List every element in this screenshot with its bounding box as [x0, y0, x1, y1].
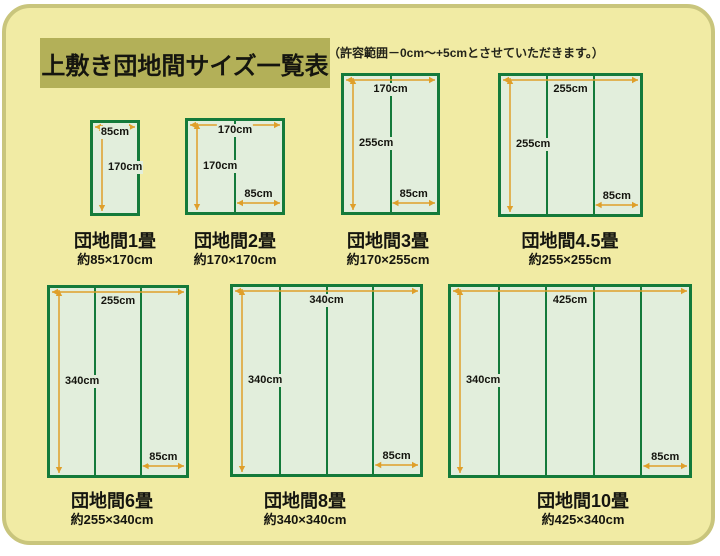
diagram-size-label: 約255×340cm — [71, 509, 154, 528]
mat-divider — [234, 121, 236, 212]
mat-width-dimension-label: 85cm — [382, 450, 412, 463]
mat-divider — [546, 76, 548, 214]
mat-divider — [640, 287, 642, 475]
width-dimension-label: 170cm — [217, 124, 253, 137]
mat-width-dimension-label: 85cm — [148, 451, 178, 464]
diagram-danchima-4-5jo: 255cm255cm85cm団地間4.5畳約255×255cm — [0, 0, 720, 556]
dimension-arrows — [451, 287, 689, 475]
height-dimension-label: 170cm — [202, 160, 238, 173]
diagrams-layer: 85cm170cm団地間1畳約85×170cm170cm170cm85cm団地間… — [0, 0, 720, 556]
width-dimension-label: 255cm — [552, 83, 588, 96]
mat-width-dimension-label: 85cm — [650, 451, 680, 464]
diagram-size-label: 約340×340cm — [264, 509, 347, 528]
mat-rect: 85cm170cm — [90, 120, 140, 216]
diagram-danchima-10jo: 425cm340cm85cm団地間10畳約425×340cm — [0, 0, 720, 556]
mat-divider — [279, 287, 281, 474]
diagram-size-label: 約85×170cm — [77, 249, 153, 268]
height-dimension-label: 255cm — [358, 137, 394, 150]
height-dimension-label: 255cm — [515, 138, 551, 151]
diagram-danchima-8jo: 340cm340cm85cm団地間8畳約340×340cm — [0, 0, 720, 556]
height-dimension-label: 340cm — [465, 374, 501, 387]
diagram-title: 団地間8畳 — [264, 487, 346, 513]
mat-width-dimension-label: 85cm — [602, 190, 632, 203]
diagram-title: 団地間6畳 — [71, 487, 153, 513]
width-dimension-label: 425cm — [552, 294, 588, 307]
mat-rect: 425cm340cm85cm — [448, 284, 692, 478]
diagram-danchima-3jo: 170cm255cm85cm団地間3畳約170×255cm — [0, 0, 720, 556]
mat-divider — [140, 288, 142, 475]
width-dimension-label: 85cm — [100, 126, 130, 139]
mat-divider — [498, 287, 500, 475]
mat-divider — [326, 287, 328, 474]
diagram-title: 団地間4.5畳 — [521, 227, 618, 253]
size-chart-poster: 上敷き団地間サイズ一覧表 （許容範囲－0cm～+5cmとさせていただきます。） … — [0, 0, 720, 556]
diagram-title: 団地間10畳 — [537, 487, 629, 513]
diagram-size-label: 約170×170cm — [194, 249, 277, 268]
diagram-title: 団地間1畳 — [74, 227, 156, 253]
mat-divider — [593, 287, 595, 475]
dimension-arrows — [50, 288, 186, 475]
dimension-arrows — [501, 76, 640, 214]
diagram-danchima-1jo: 85cm170cm団地間1畳約85×170cm — [0, 0, 720, 556]
mat-divider — [94, 288, 96, 475]
width-dimension-label: 255cm — [100, 295, 136, 308]
height-dimension-label: 340cm — [247, 374, 283, 387]
mat-width-dimension-label: 85cm — [243, 188, 273, 201]
dimension-arrows — [188, 121, 282, 212]
mat-width-dimension-label: 85cm — [399, 188, 429, 201]
dimension-arrows — [93, 123, 137, 213]
mat-divider — [593, 76, 595, 214]
diagram-danchima-6jo: 255cm340cm85cm団地間6畳約255×340cm — [0, 0, 720, 556]
diagram-size-label: 約255×255cm — [529, 249, 612, 268]
mat-rect: 170cm170cm85cm — [185, 118, 285, 215]
diagram-size-label: 約170×255cm — [347, 249, 430, 268]
mat-rect: 255cm340cm85cm — [47, 285, 189, 478]
mat-divider — [390, 76, 392, 212]
dimension-arrows — [233, 287, 420, 474]
width-dimension-label: 170cm — [372, 83, 408, 96]
mat-rect: 170cm255cm85cm — [341, 73, 440, 215]
height-dimension-label: 340cm — [64, 375, 100, 388]
height-dimension-label: 170cm — [107, 161, 143, 174]
diagram-title: 団地間3畳 — [347, 227, 429, 253]
mat-rect: 255cm255cm85cm — [498, 73, 643, 217]
diagram-danchima-2jo: 170cm170cm85cm団地間2畳約170×170cm — [0, 0, 720, 556]
mat-divider — [545, 287, 547, 475]
dimension-arrows — [344, 76, 437, 212]
width-dimension-label: 340cm — [308, 294, 344, 307]
diagram-title: 団地間2畳 — [194, 227, 276, 253]
mat-divider — [372, 287, 374, 474]
mat-rect: 340cm340cm85cm — [230, 284, 423, 477]
diagram-size-label: 約425×340cm — [542, 509, 625, 528]
